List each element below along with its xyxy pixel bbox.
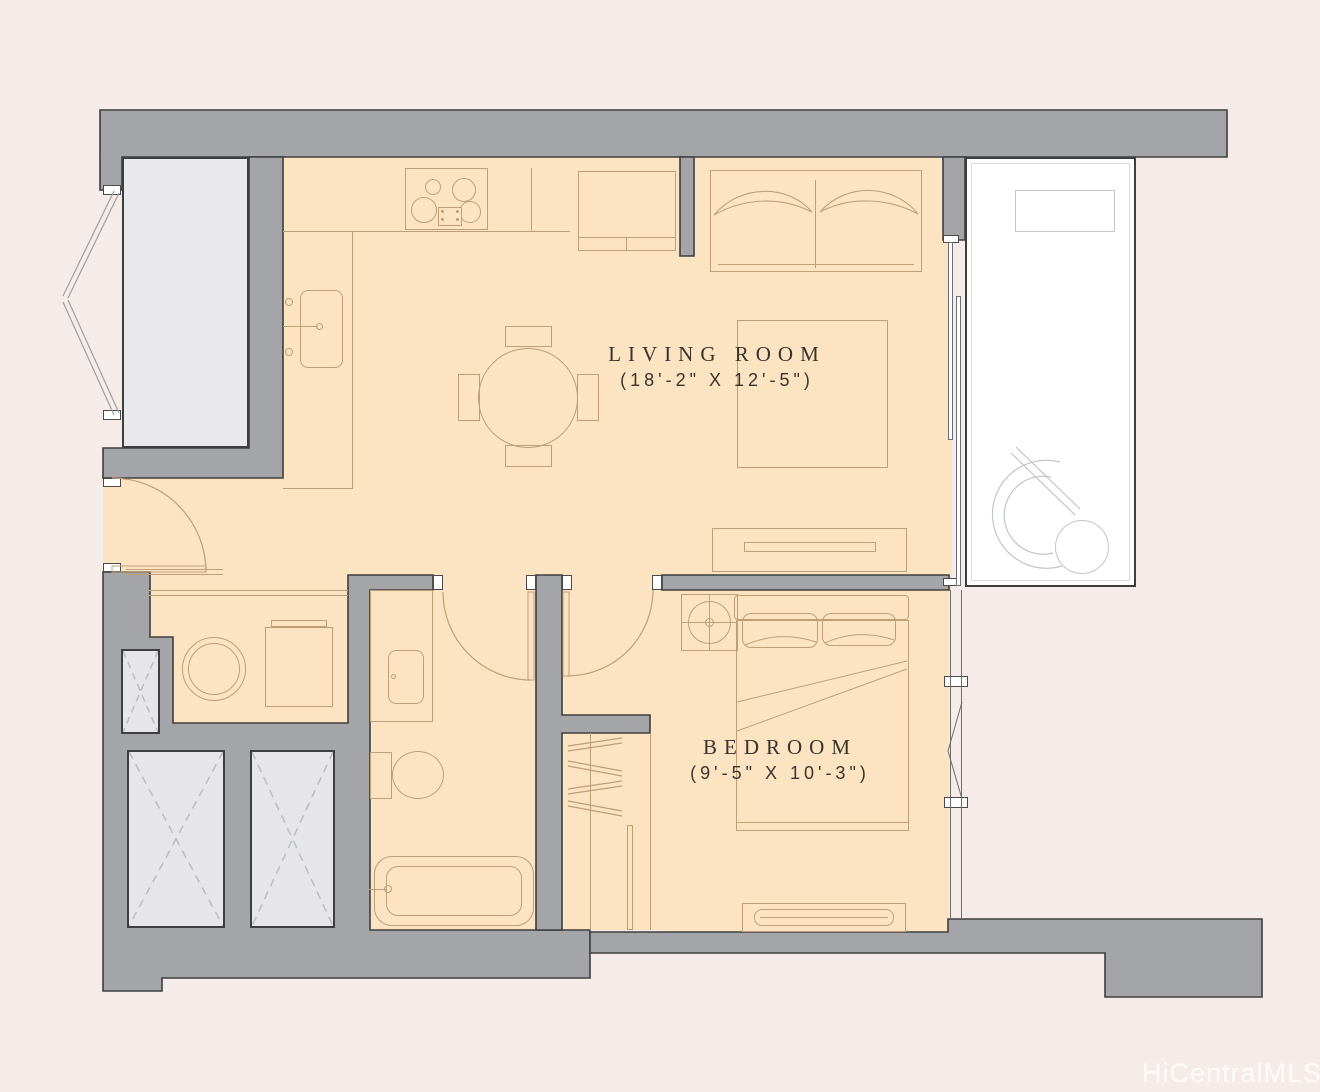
bath-door-frame xyxy=(433,575,443,590)
refrigerator-handle xyxy=(626,237,627,251)
entry-door-frame-bottom xyxy=(103,563,121,572)
bedroom-dimensions: (9'-5" X 10'-3") xyxy=(650,763,910,784)
ceiling-fan-cross-v xyxy=(709,594,710,651)
cabinet-divider xyxy=(531,168,532,231)
refrigerator xyxy=(578,171,676,251)
pillow-right xyxy=(822,613,896,646)
bedroom-door-frame xyxy=(652,575,662,590)
bed xyxy=(736,620,909,831)
stove-knob xyxy=(456,210,459,213)
kitchen-faucet-arm xyxy=(283,326,318,327)
laundry-door-line xyxy=(126,569,223,570)
bath-door-hinge-frame xyxy=(526,575,536,590)
dining-chair-north xyxy=(505,326,552,347)
elevator-shaft-right xyxy=(250,750,335,928)
utility-shaft xyxy=(121,649,160,734)
dresser-line xyxy=(760,917,888,918)
pillow-left xyxy=(742,613,818,648)
floor-plan: LIVING ROOM (18'-2" X 12'-5") BEDROOM (9… xyxy=(0,0,1320,1092)
entry-door-frame-top xyxy=(103,478,121,487)
toilet-bowl xyxy=(392,751,444,799)
bed-foot-line xyxy=(737,822,908,823)
counter-front-edge xyxy=(283,231,570,232)
toilet-tank xyxy=(370,752,392,799)
bathroom-faucet-dot xyxy=(391,674,396,679)
stove-knob xyxy=(441,218,444,221)
dining-chair-south xyxy=(505,445,552,467)
burner-small xyxy=(425,179,441,195)
sofa-seat-line xyxy=(718,264,914,265)
closet-hall-floor xyxy=(562,590,663,930)
stove-knob xyxy=(441,210,444,213)
burner-bottom-right xyxy=(459,201,481,223)
kitchen-faucet-control-bottom xyxy=(285,348,293,356)
stove-knob xyxy=(456,218,459,221)
patio-side-table xyxy=(1055,520,1109,574)
laundry-door-line xyxy=(126,574,223,575)
bedroom-window-line-2 xyxy=(961,590,962,919)
refrigerator-door-line xyxy=(578,237,676,238)
corridor-door-swings xyxy=(63,191,119,415)
tub-faucet xyxy=(384,885,392,893)
sofa xyxy=(710,170,922,272)
closet-divider-line xyxy=(590,733,591,930)
closet-door xyxy=(627,825,633,930)
bathtub-basin xyxy=(386,866,522,916)
burner-top-right xyxy=(452,178,476,202)
mls-watermark: HiCentralMLS xyxy=(1142,1058,1320,1089)
counter-end-edge xyxy=(283,488,353,489)
corridor-door-frame-top xyxy=(103,185,121,195)
living-room-label: LIVING ROOM xyxy=(592,342,842,367)
bedroom-window-tick-bottom xyxy=(944,797,968,808)
counter-side-edge xyxy=(352,231,353,489)
washer-drum xyxy=(188,643,240,695)
sliding-door-panel-2 xyxy=(956,296,961,586)
tv xyxy=(744,542,876,552)
laundry-door-line xyxy=(148,590,348,591)
sofa-center-line xyxy=(815,180,816,268)
bedroom-window-line-1 xyxy=(950,590,951,919)
dining-table xyxy=(478,348,578,448)
living-room-dimensions: (18'-2" X 12'-5") xyxy=(582,370,852,391)
burner-bottom-left xyxy=(411,197,437,223)
kitchen-faucet-head xyxy=(316,323,323,330)
entry-doorway-floor xyxy=(103,478,122,572)
bedroom-label: BEDROOM xyxy=(655,735,905,760)
dryer xyxy=(265,627,333,707)
bedroom-window-tick-top xyxy=(944,676,968,687)
stairwell-room xyxy=(122,157,249,448)
sliding-door-panel-1 xyxy=(948,242,953,440)
elevator-shaft-left xyxy=(127,750,225,928)
laundry-door-line xyxy=(148,595,348,596)
dining-chair-west xyxy=(458,374,480,421)
bedroom-door-hinge-frame xyxy=(562,575,572,590)
kitchen-faucet-control-top xyxy=(285,298,293,306)
dryer-panel xyxy=(271,620,327,627)
corridor-door-frame-bottom xyxy=(103,410,121,420)
patio-table xyxy=(1015,190,1115,232)
